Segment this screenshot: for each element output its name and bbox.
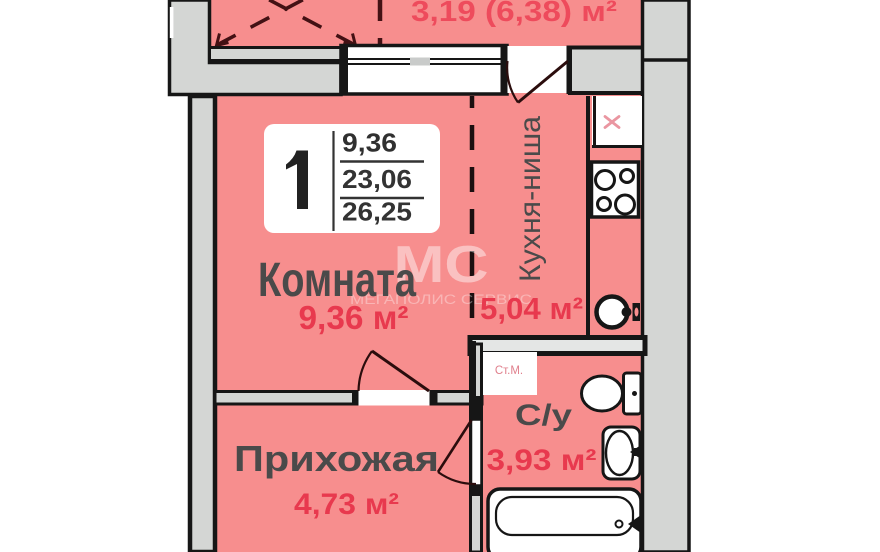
- svg-text:26,25: 26,25: [342, 197, 412, 227]
- svg-text:3,19 (6,38) м²: 3,19 (6,38) м²: [411, 0, 617, 28]
- svg-text:4,73 м²: 4,73 м²: [294, 488, 399, 521]
- svg-text:Прихожая: Прихожая: [234, 438, 439, 479]
- svg-text:3,93 м²: 3,93 м²: [487, 444, 597, 477]
- svg-text:23,06: 23,06: [342, 164, 412, 194]
- svg-text:Ст.М.: Ст.М.: [495, 365, 523, 377]
- svg-text:Кухня-ниша: Кухня-ниша: [514, 116, 547, 282]
- svg-text:5,04 м²: 5,04 м²: [480, 291, 583, 326]
- svg-text:9,36: 9,36: [342, 128, 397, 158]
- svg-text:9,36 м²: 9,36 м²: [299, 299, 409, 336]
- svg-text:С/у: С/у: [515, 399, 572, 432]
